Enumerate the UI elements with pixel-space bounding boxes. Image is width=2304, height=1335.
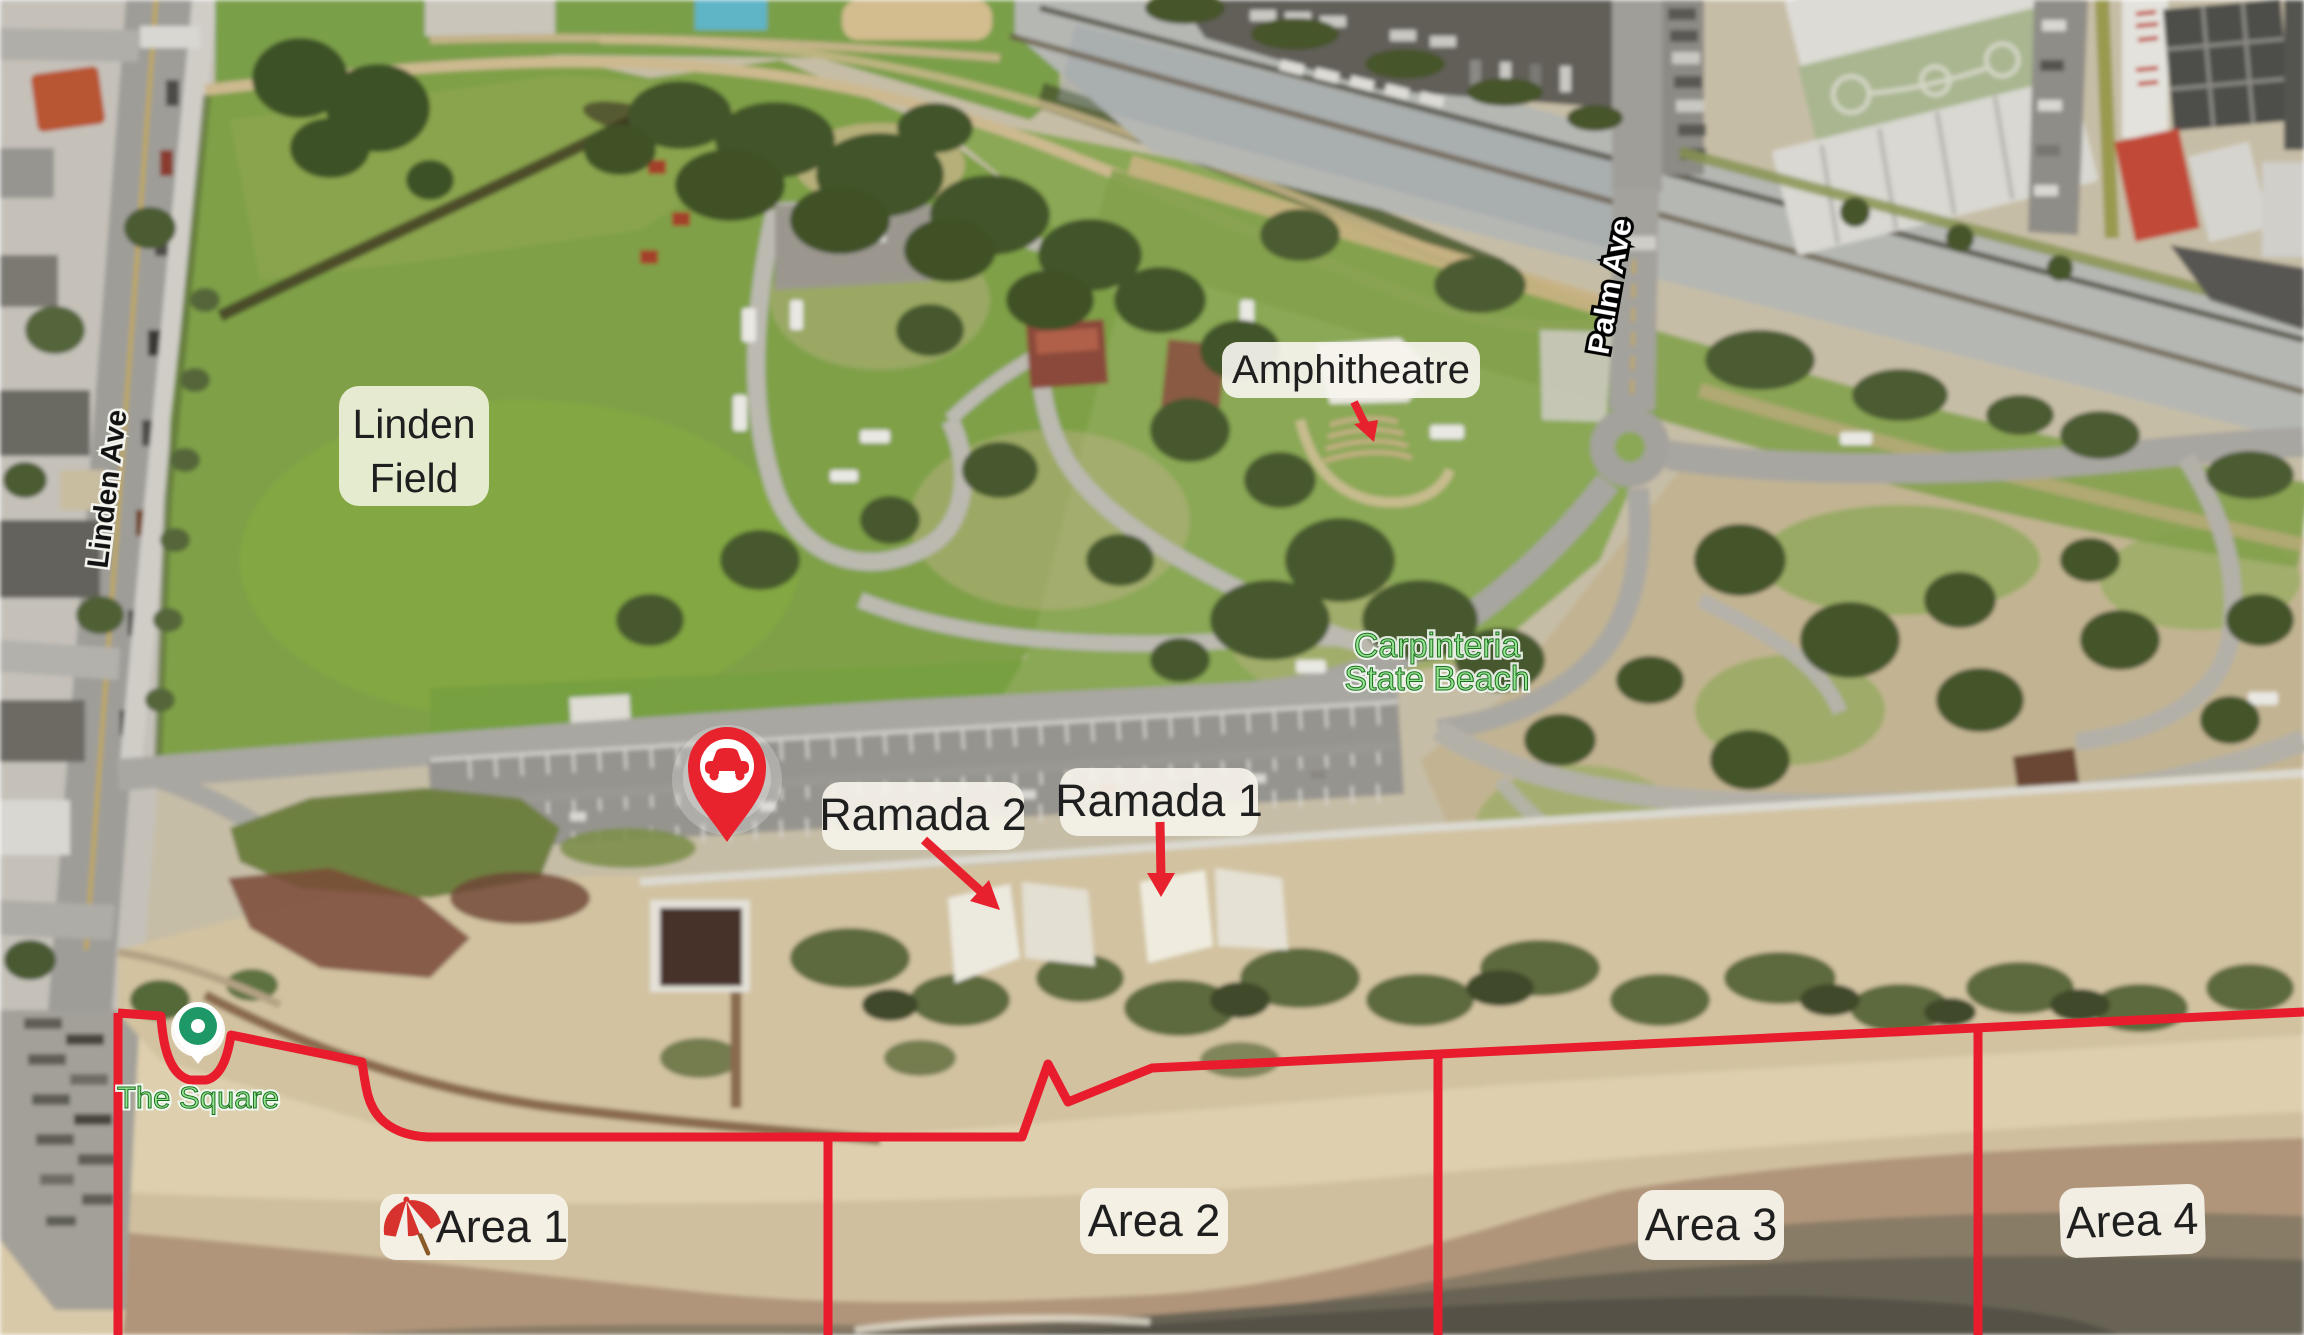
svg-text:Amphitheatre: Amphitheatre	[1232, 348, 1470, 392]
svg-text:Area 4: Area 4	[2065, 1193, 2199, 1249]
svg-text:Linden: Linden	[352, 401, 475, 447]
svg-text:Area 1: Area 1	[436, 1201, 569, 1252]
svg-text:The Square: The Square	[117, 1080, 279, 1115]
svg-text:Field: Field	[370, 455, 459, 501]
svg-text:Ramada 1: Ramada 1	[1055, 775, 1263, 826]
svg-text:Ramada 2: Ramada 2	[819, 789, 1027, 840]
svg-text:Area 3: Area 3	[1645, 1199, 1778, 1250]
svg-text:State Beach: State Beach	[1344, 660, 1529, 698]
svg-text:Area 2: Area 2	[1088, 1195, 1221, 1246]
